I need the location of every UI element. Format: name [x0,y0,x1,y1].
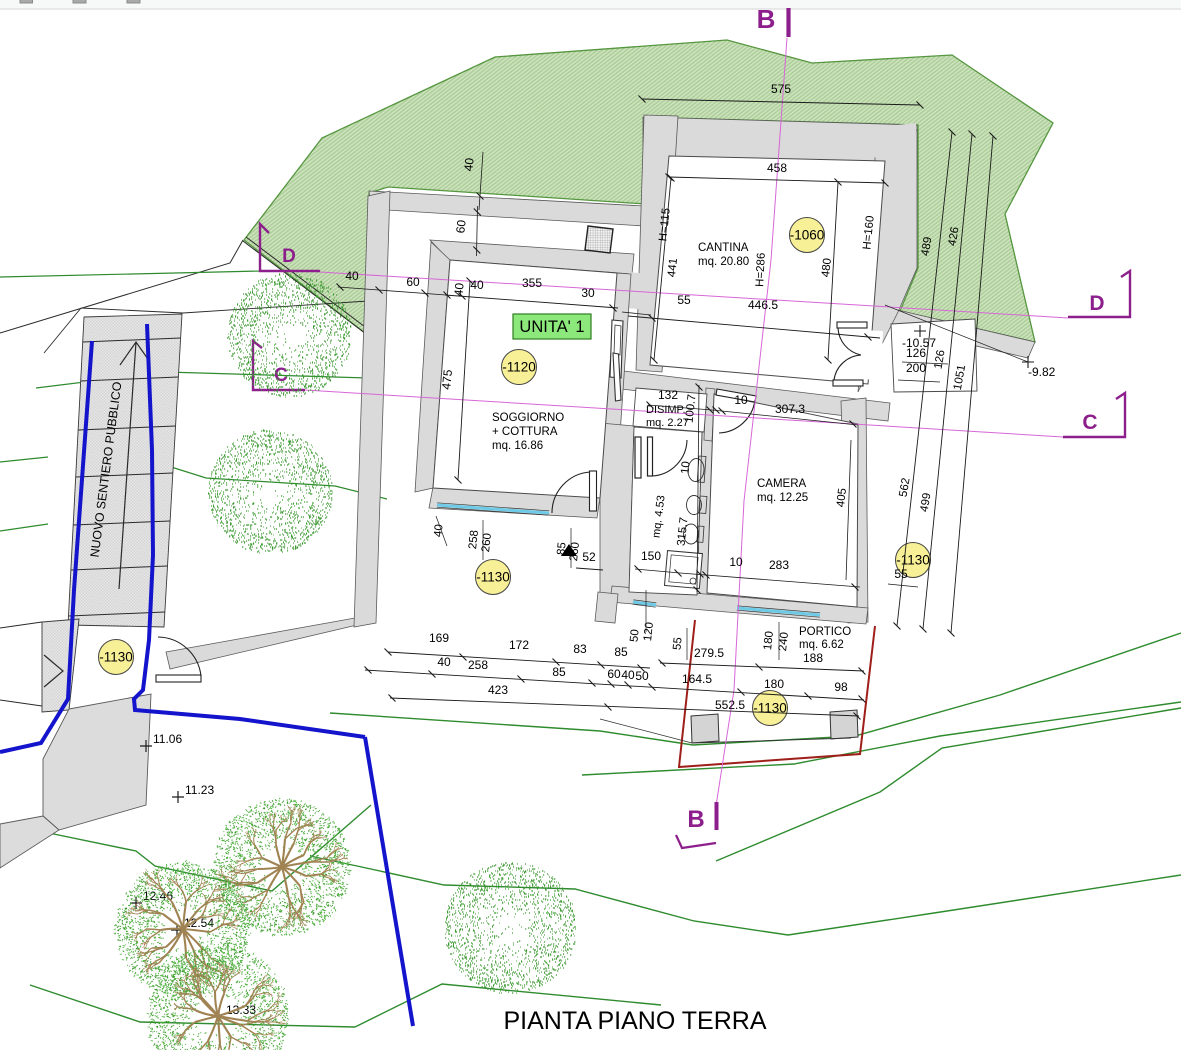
svg-text:120: 120 [642,622,656,642]
svg-text:-1120: -1120 [502,360,536,375]
svg-text:164.5: 164.5 [682,672,712,686]
svg-text:PORTICO: PORTICO [799,626,851,638]
svg-text:PIANTA PIANO TERRA: PIANTA PIANO TERRA [503,1007,766,1035]
svg-text:55: 55 [894,567,908,581]
svg-text:SOGGIORNO: SOGGIORNO [492,412,564,424]
svg-text:60: 60 [406,275,420,289]
svg-text:50: 50 [635,669,649,683]
svg-text:260: 260 [480,533,494,553]
svg-text:405: 405 [835,488,849,508]
svg-text:575: 575 [771,82,791,96]
svg-text:H=286: H=286 [754,252,768,287]
svg-text:40: 40 [470,278,484,292]
svg-text:13.33: 13.33 [226,1003,256,1017]
svg-text:-1060: -1060 [790,228,825,243]
svg-text:50: 50 [628,629,641,643]
svg-text:+ COTTURA: + COTTURA [492,426,558,438]
svg-text:mq. 6.62: mq. 6.62 [799,639,844,651]
svg-text:10: 10 [729,555,743,569]
svg-text:200: 200 [906,361,926,375]
svg-text:423: 423 [488,683,508,697]
svg-text:283: 283 [769,558,789,572]
svg-text:441: 441 [666,258,680,278]
svg-text:40: 40 [451,282,466,297]
svg-text:55: 55 [677,293,691,307]
svg-text:-9.82: -9.82 [1028,365,1056,379]
svg-text:85: 85 [552,665,566,679]
svg-text:552.5: 552.5 [715,698,745,712]
svg-text:132: 132 [658,388,678,402]
svg-text:258: 258 [468,658,488,672]
svg-text:B: B [757,4,776,34]
svg-text:40: 40 [345,269,359,283]
svg-text:mq. 12.25: mq. 12.25 [757,492,808,504]
svg-text:60: 60 [453,219,468,234]
svg-text:83: 83 [573,642,587,656]
svg-text:40: 40 [432,524,445,538]
svg-text:279.5: 279.5 [694,646,724,660]
svg-text:mq. 20.80: mq. 20.80 [698,256,749,268]
svg-text:-1130: -1130 [896,553,930,568]
svg-text:40: 40 [621,668,635,682]
svg-text:307.3: 307.3 [775,402,805,416]
svg-text:458: 458 [767,161,787,175]
svg-text:85: 85 [614,645,628,659]
svg-text:180: 180 [764,677,784,691]
svg-text:CANTINA: CANTINA [698,242,749,254]
svg-text:UNITA' 1: UNITA' 1 [519,318,584,336]
svg-text:B: B [687,806,704,833]
svg-text:10: 10 [734,393,748,407]
svg-text:10: 10 [679,461,692,475]
svg-text:D: D [1089,292,1104,315]
svg-text:172: 172 [509,638,529,652]
svg-text:40: 40 [461,157,476,172]
svg-text:11.06: 11.06 [153,732,182,746]
svg-text:355: 355 [522,276,542,290]
svg-text:180: 180 [762,631,776,651]
svg-text:40: 40 [437,655,451,669]
svg-text:258: 258 [467,530,481,550]
svg-text:150: 150 [641,549,661,563]
svg-text:446.5: 446.5 [748,298,778,312]
svg-text:C: C [1082,411,1097,434]
svg-text:DISIMP.: DISIMP. [646,404,686,416]
svg-text:11.23: 11.23 [185,783,214,797]
svg-text:30: 30 [581,286,595,300]
svg-text:126: 126 [906,346,926,360]
svg-text:mq. 2.27: mq. 2.27 [646,417,689,429]
svg-text:CAMERA: CAMERA [757,478,807,490]
svg-text:475: 475 [439,369,455,391]
svg-text:98: 98 [834,680,848,694]
svg-text:55: 55 [671,637,684,651]
svg-text:-1130: -1130 [476,570,510,585]
svg-text:60: 60 [607,667,621,681]
svg-text:169: 169 [429,631,449,645]
svg-text:52: 52 [582,550,596,564]
svg-text:-1130: -1130 [99,650,133,665]
svg-text:188: 188 [803,651,823,665]
svg-text:mq. 16.86: mq. 16.86 [492,440,543,452]
svg-text:480: 480 [820,258,834,278]
svg-text:D: D [282,246,296,267]
